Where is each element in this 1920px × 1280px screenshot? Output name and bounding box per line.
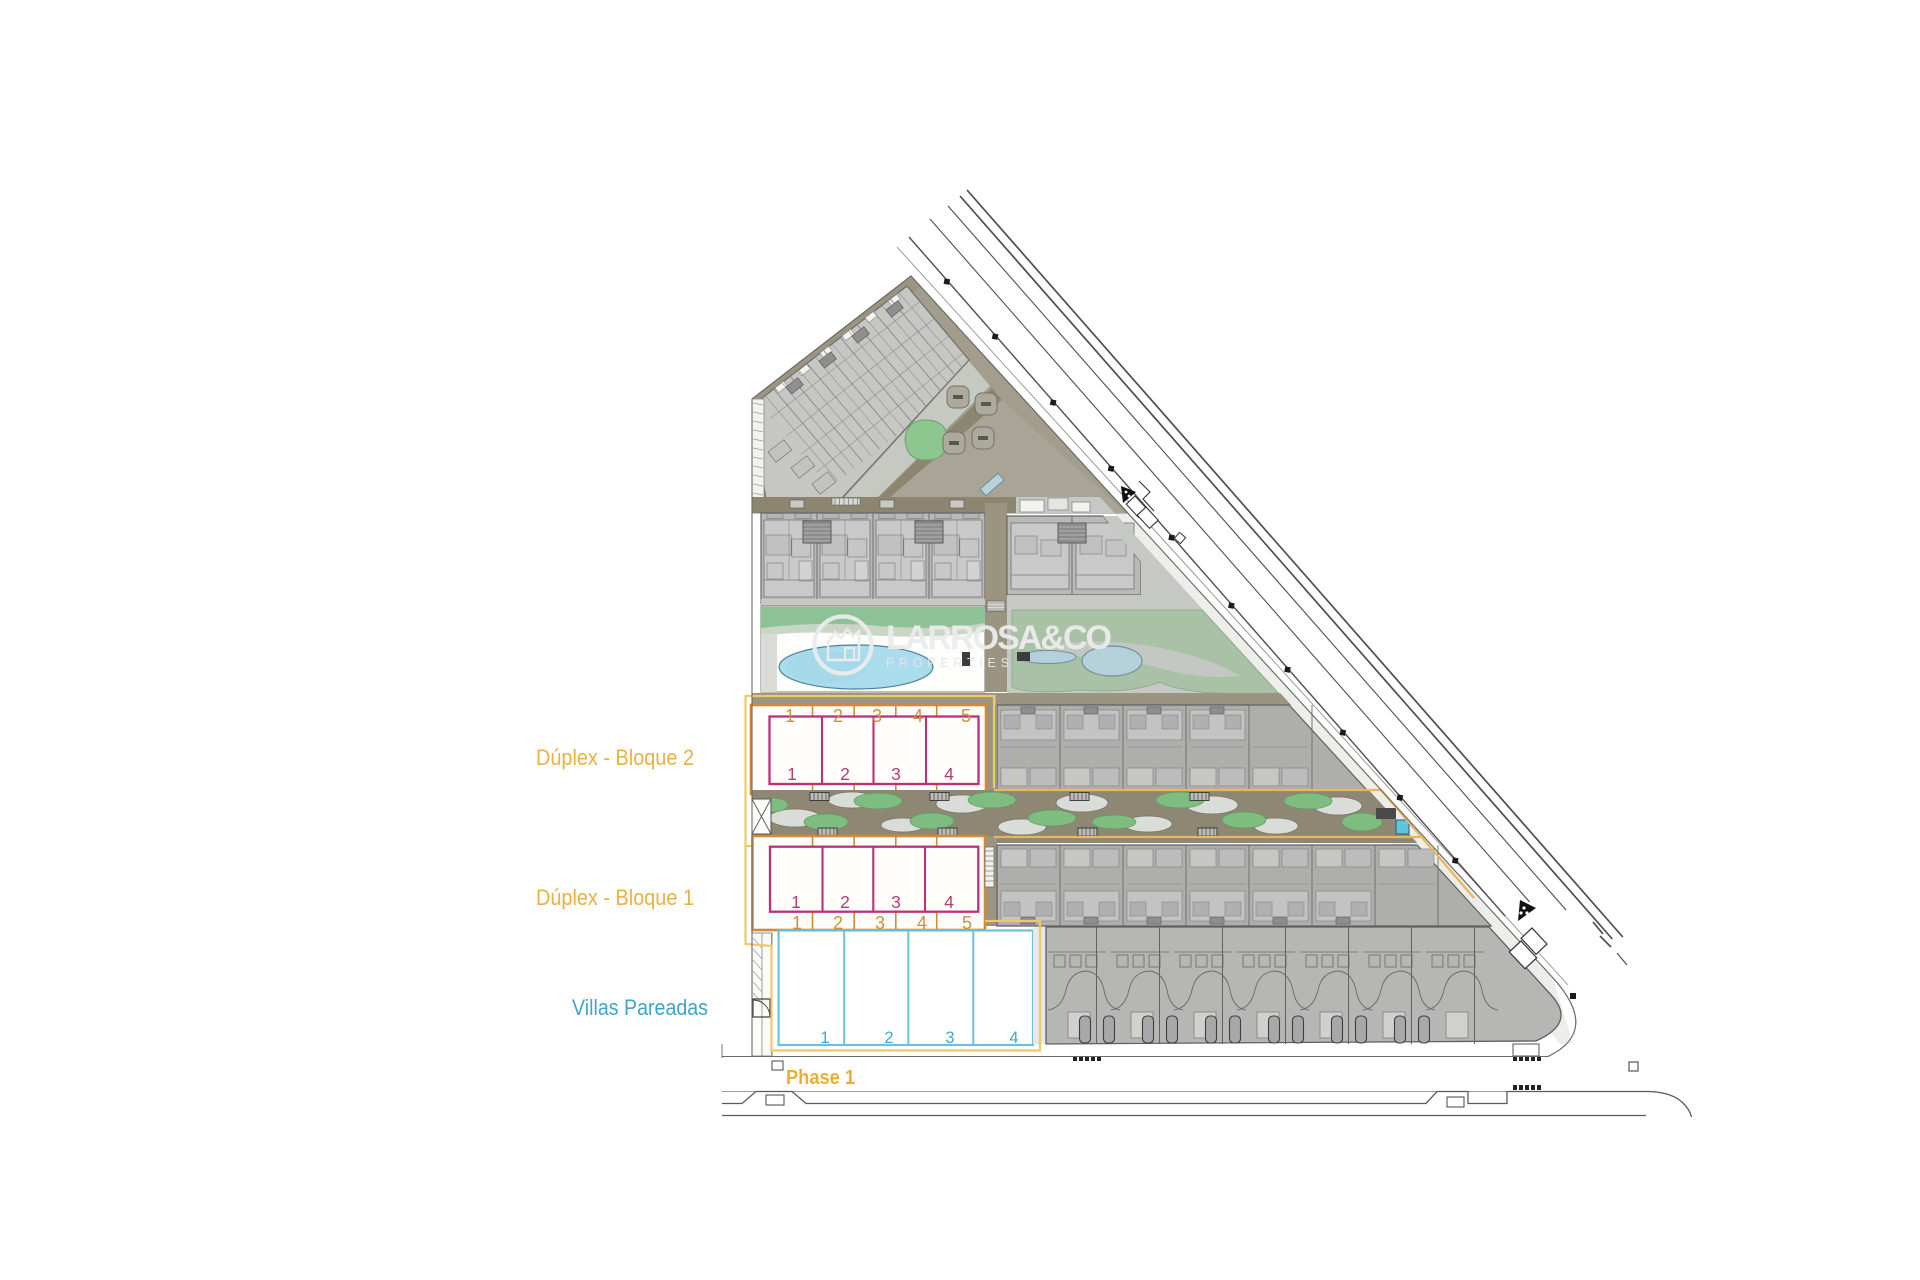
svg-text:4: 4: [944, 764, 954, 784]
svg-text:1: 1: [785, 706, 795, 726]
svg-text:3: 3: [891, 892, 901, 912]
svg-text:2: 2: [840, 892, 850, 912]
svg-text:1: 1: [791, 892, 801, 912]
svg-text:2: 2: [840, 764, 850, 784]
svg-text:2: 2: [833, 706, 843, 726]
svg-text:3: 3: [945, 1029, 954, 1047]
svg-text:3: 3: [872, 706, 882, 726]
svg-text:4: 4: [1009, 1029, 1018, 1047]
svg-text:Phase 1: Phase 1: [786, 1067, 855, 1089]
svg-text:P R O P E R T I E S: P R O P E R T I E S: [886, 656, 1009, 670]
svg-text:1: 1: [787, 764, 797, 784]
svg-text:Dúplex - Bloque 1: Dúplex - Bloque 1: [536, 885, 694, 910]
svg-text:2: 2: [884, 1029, 893, 1047]
svg-text:3: 3: [891, 764, 901, 784]
svg-text:Dúplex - Bloque 2: Dúplex - Bloque 2: [536, 745, 694, 770]
svg-text:4: 4: [913, 706, 923, 726]
svg-text:5: 5: [961, 706, 971, 726]
svg-text:1: 1: [820, 1029, 829, 1047]
svg-text:4: 4: [944, 892, 954, 912]
svg-text:LARROSA&CO: LARROSA&CO: [886, 619, 1112, 657]
svg-text:Villas Pareadas: Villas Pareadas: [572, 995, 708, 1020]
